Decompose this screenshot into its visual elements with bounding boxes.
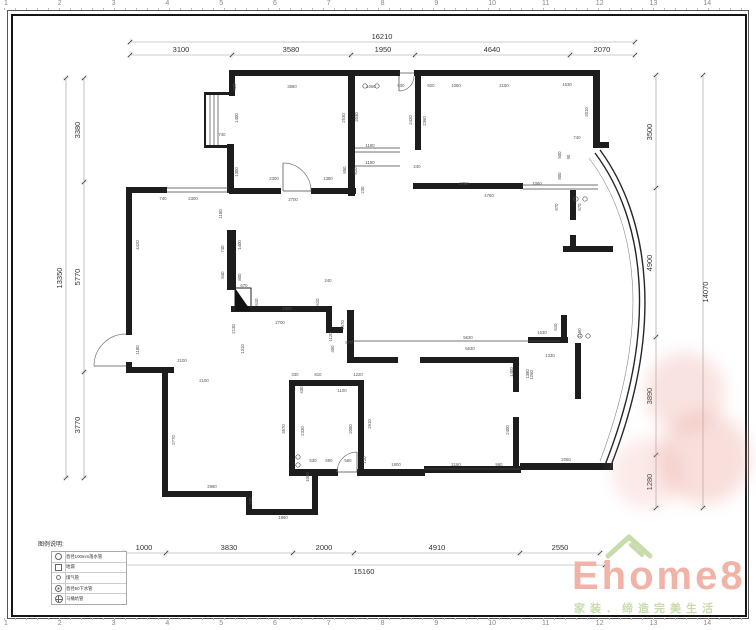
legend-label: 马桶坑管 xyxy=(66,596,83,602)
legend-row: 煤气管 xyxy=(52,573,126,584)
dimension-text: 1060 xyxy=(532,181,542,186)
overall-dimension-text: 3380 xyxy=(73,122,82,139)
dimension-text: 670 xyxy=(577,203,582,211)
dimension-text: 1180 xyxy=(218,209,223,219)
dimension-text: 1380 xyxy=(323,176,333,181)
dimension-text: 560 xyxy=(344,458,352,463)
wall xyxy=(513,417,519,470)
ruler-number: 13 xyxy=(650,620,658,627)
dimension-text: 1300 xyxy=(234,167,239,177)
legend-symbol-cell xyxy=(52,594,66,604)
dimension-text: 870 xyxy=(345,340,353,345)
wall xyxy=(347,310,354,363)
legend-box: 图例说明: 直径100mm落水管地漏煤气管直径50下水管马桶坑管 xyxy=(38,540,127,605)
sym-circle-sm-icon xyxy=(56,575,61,580)
dimension-text: 1330 xyxy=(545,353,555,358)
pipe-symbol xyxy=(586,334,590,338)
dimension-text: 2980 xyxy=(207,484,217,489)
dimension-text: 2700 xyxy=(288,197,298,202)
dimension-text: 240 xyxy=(324,278,332,283)
ruler-number: 10 xyxy=(488,620,496,627)
dimension-text: 4420 xyxy=(135,240,140,250)
dimension-text: 2160 xyxy=(451,462,461,467)
legend-symbol-cell xyxy=(52,563,66,573)
dimension-text: 1400 xyxy=(234,113,239,123)
wall xyxy=(126,187,132,335)
dimension-text: 1060 xyxy=(366,84,376,89)
overall-dimension-text: 16210 xyxy=(372,32,393,41)
overall-dimension-text: 3100 xyxy=(173,45,190,54)
dimension-text: 120 xyxy=(362,456,367,464)
dimension-text: 1220 xyxy=(353,372,363,377)
dimension-text: 2300 xyxy=(282,306,292,311)
dimension-text: 1120 xyxy=(328,332,333,342)
pipe-symbol xyxy=(583,197,587,201)
ruler-number: 12 xyxy=(596,620,604,627)
curved-balcony-wall xyxy=(600,150,645,468)
overall-dimension-text: 3830 xyxy=(221,543,238,552)
dimension-text: 2130 xyxy=(231,324,236,334)
wall xyxy=(312,473,318,513)
dimension-text: 690 xyxy=(325,458,333,463)
legend-row: 地漏 xyxy=(52,563,126,574)
dimension-text: 670 xyxy=(240,283,248,288)
dimension-text: 2050 xyxy=(561,457,571,462)
dimension-text: 1190 xyxy=(365,160,375,165)
dimension-text: 1530 xyxy=(562,82,572,87)
legend-label: 地漏 xyxy=(66,564,75,570)
ruler-bottom: 1234567891011121314 xyxy=(0,620,756,630)
dimension-text: 1180 xyxy=(135,345,140,355)
door-swing-arc xyxy=(283,163,311,191)
dimension-text: 1150 xyxy=(577,328,582,338)
ruler-number: 6 xyxy=(273,620,277,627)
overall-dimension-text: 1280 xyxy=(645,474,654,491)
dimension-text: 1400 xyxy=(509,367,514,377)
overall-dimension-text: 3770 xyxy=(73,417,82,434)
dimension-text: 820 xyxy=(353,167,358,175)
dimension-text: 5630 xyxy=(465,346,475,351)
wall xyxy=(593,70,600,148)
wall xyxy=(575,343,581,399)
wall xyxy=(229,188,281,194)
pipe-symbol xyxy=(296,455,300,459)
dimension-text: 5630 xyxy=(463,335,473,340)
wall xyxy=(227,144,234,193)
overall-dimension-text: 5770 xyxy=(73,269,82,286)
legend-symbol-cell xyxy=(52,584,66,594)
wall xyxy=(415,70,421,150)
wall xyxy=(352,70,400,76)
curved-balcony-wall xyxy=(589,158,633,461)
dimension-text: 800 xyxy=(237,273,242,281)
wall xyxy=(357,469,425,476)
dimension-text: 2030 xyxy=(354,112,359,122)
dimension-text: 2360 xyxy=(422,116,427,126)
dimension-text: 740 xyxy=(218,132,226,137)
dimension-text: 2400 xyxy=(505,425,510,435)
wall xyxy=(205,92,232,95)
wall xyxy=(570,190,576,220)
dimension-text: 2420 xyxy=(408,115,413,125)
overall-dimension-text: 15160 xyxy=(354,567,375,576)
wall xyxy=(414,70,600,76)
dimension-text: 1310 xyxy=(240,344,245,354)
legend-row: 直径100mm落水管 xyxy=(52,552,126,563)
wall xyxy=(352,357,398,363)
wall xyxy=(289,469,338,476)
ruler-number: 14 xyxy=(703,620,711,627)
dimension-text: 2330 xyxy=(300,426,305,436)
overall-dimension-text: 4900 xyxy=(645,255,654,272)
dimension-text: 740 xyxy=(220,245,225,253)
overall-dimension-text: 1000 xyxy=(136,543,153,552)
ruler-number: 9 xyxy=(434,620,438,627)
legend-row: 马桶坑管 xyxy=(52,594,126,604)
dimension-text: 2010 xyxy=(584,107,589,117)
dimension-text: 2100 xyxy=(199,378,209,383)
door-swing-arc xyxy=(94,334,126,366)
dimension-text: 2300 xyxy=(269,176,279,181)
wall xyxy=(204,92,206,148)
sym-circle-cross-icon xyxy=(55,595,63,603)
overall-dimension-text: 3580 xyxy=(283,45,300,54)
dimension-text: 610 xyxy=(315,298,320,306)
dimension-text: 330 xyxy=(291,372,299,377)
dimension-text: 850 xyxy=(342,166,347,174)
dimension-text: 810 xyxy=(314,372,322,377)
dimension-text: 1380 xyxy=(525,369,530,379)
dimension-text: 1630 xyxy=(537,330,547,335)
ruler-number: 4 xyxy=(165,620,169,627)
wall xyxy=(227,230,236,290)
overall-dimension-text: 1950 xyxy=(375,45,392,54)
pipe-symbol xyxy=(296,463,300,467)
overall-dimension-text: 4910 xyxy=(429,543,446,552)
dimension-text: 1800 xyxy=(391,462,401,467)
dimension-text: 960 xyxy=(495,462,503,467)
dimension-text: 2790 xyxy=(459,181,469,186)
dimension-text: 2300 xyxy=(188,196,198,201)
dimension-text: 2770 xyxy=(171,435,176,445)
dimension-text: 530 xyxy=(309,458,317,463)
dimension-text: 1570 xyxy=(340,320,345,330)
floor-plan-drawing: 6203580140074013002300138027002530203011… xyxy=(0,0,756,630)
dimension-text: 2150 xyxy=(499,83,509,88)
legend-symbol-cell xyxy=(52,573,66,583)
legend-label: 直径50下水管 xyxy=(66,585,93,591)
dimension-text: 2100 xyxy=(177,358,187,363)
dimension-text: 2700 xyxy=(275,320,285,325)
legend-label: 直径100mm落水管 xyxy=(66,554,102,560)
dimension-text: 610 xyxy=(553,323,558,331)
ruler-number: 2 xyxy=(58,620,62,627)
wall xyxy=(561,315,567,343)
sym-circle-lg-icon xyxy=(55,553,62,560)
ruler-number: 5 xyxy=(219,620,223,627)
dimension-text: 430 xyxy=(299,386,304,394)
legend-row: 直径50下水管 xyxy=(52,584,126,595)
dimension-text: 3580 xyxy=(287,84,297,89)
dimension-text: 620 xyxy=(232,83,237,91)
legend-label: 煤气管 xyxy=(66,575,79,581)
overall-dimension-text: 3500 xyxy=(645,124,654,141)
dimension-text: 2080 xyxy=(348,424,353,434)
wall xyxy=(162,367,168,497)
ruler-number: 8 xyxy=(381,620,385,627)
ruler-number: 7 xyxy=(327,620,331,627)
wall xyxy=(424,466,521,473)
overall-dimension-text: 3890 xyxy=(645,388,654,405)
dimension-text: 610 xyxy=(254,298,259,306)
legend-title: 图例说明: xyxy=(38,540,115,549)
dimension-text: 4760 xyxy=(484,193,494,198)
ruler-number: 11 xyxy=(542,620,549,627)
dimension-text: 1860 xyxy=(278,515,288,520)
overall-dimension-text: 14070 xyxy=(701,282,710,303)
overall-dimension-text: 2070 xyxy=(594,45,611,54)
ruler-number: 1 xyxy=(4,620,8,627)
sym-square-icon xyxy=(55,564,62,571)
wall xyxy=(126,187,167,193)
dimension-text: 1400 xyxy=(237,240,242,250)
overall-dimension-text: 2550 xyxy=(552,543,569,552)
wall xyxy=(520,463,613,470)
wall xyxy=(289,380,364,386)
dimension-text: 920 xyxy=(427,83,435,88)
dimension-text: 2530 xyxy=(341,113,346,123)
overall-dimension-text: 2000 xyxy=(316,543,333,552)
wall xyxy=(289,380,295,476)
wall xyxy=(162,491,252,497)
overall-dimension-text: 4640 xyxy=(484,45,501,54)
legend-symbol-cell xyxy=(52,552,66,562)
wall xyxy=(229,70,355,76)
overall-dimension-text: 13350 xyxy=(55,268,64,289)
ruler-tick-marks xyxy=(4,618,752,620)
wall xyxy=(348,70,355,196)
dimension-text: 670 xyxy=(554,203,559,211)
legend-table: 直径100mm落水管地漏煤气管直径50下水管马桶坑管 xyxy=(51,551,127,605)
dimension-text: 1190 xyxy=(365,143,375,148)
dimension-text: 2610 xyxy=(367,419,372,429)
dimension-text: 500 xyxy=(557,151,562,159)
wall xyxy=(563,246,613,252)
ruler-number: 3 xyxy=(112,620,116,627)
dimension-text: 740 xyxy=(159,196,167,201)
dimension-text: 230 xyxy=(360,186,365,194)
dimension-text: 450 xyxy=(330,345,335,353)
dimension-text: 840 xyxy=(220,271,225,279)
sym-circle-dot-icon xyxy=(55,585,62,592)
dimension-text: 90 xyxy=(566,154,571,159)
dimension-text: 800 xyxy=(557,172,562,180)
dimension-text: 240 xyxy=(248,497,253,505)
dimension-text: 1060 xyxy=(451,83,461,88)
dimension-text: 740 xyxy=(573,135,581,140)
dimension-text: 3670 xyxy=(281,424,286,434)
dimension-text: 1080 xyxy=(305,472,310,482)
dimension-text: 530 xyxy=(397,83,405,88)
dimension-text: 1100 xyxy=(337,388,347,393)
wall xyxy=(420,357,514,363)
dimension-text: 240 xyxy=(413,164,421,169)
wall xyxy=(593,142,609,148)
drawing-sheet: { "ruler": { "numbers": ["1","2","3","4"… xyxy=(0,0,756,630)
